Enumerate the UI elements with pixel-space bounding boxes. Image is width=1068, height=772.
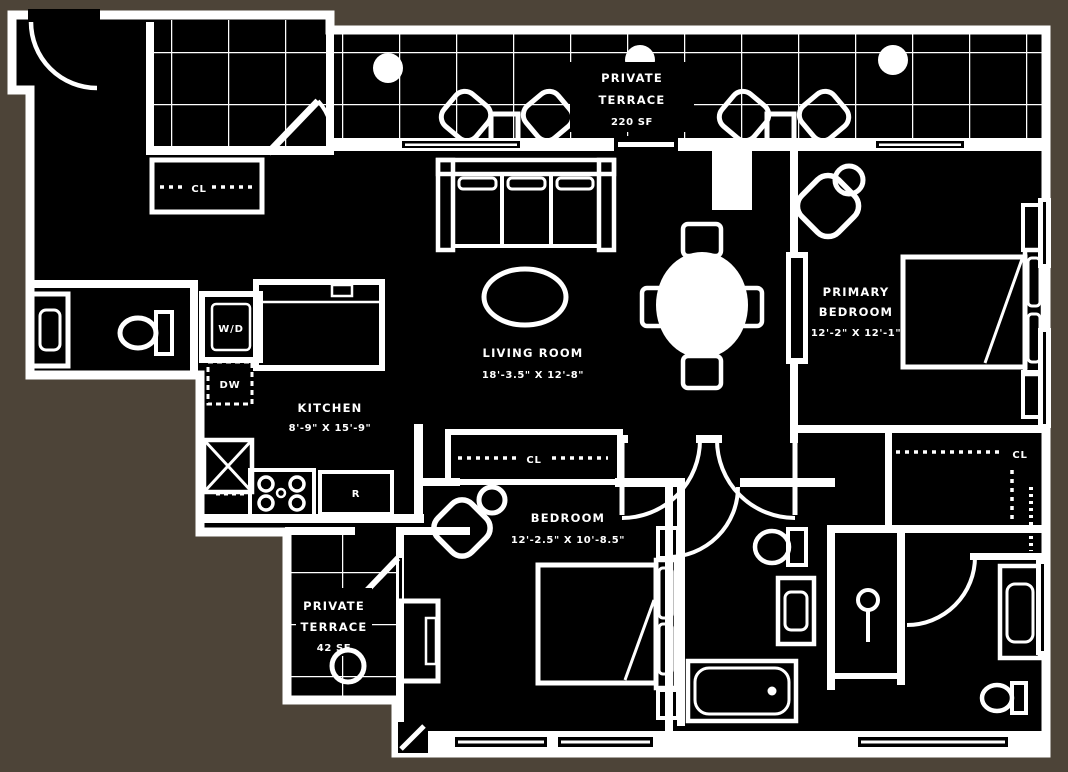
wall bbox=[615, 478, 677, 487]
primary-label-line2: BEDROOM bbox=[819, 305, 893, 319]
wall bbox=[827, 525, 835, 690]
terrace-top-area: 220 SF bbox=[611, 117, 653, 128]
wall bbox=[740, 478, 835, 487]
wall bbox=[285, 527, 355, 535]
wall bbox=[190, 280, 198, 378]
primary-closet-label: CL bbox=[1012, 450, 1027, 461]
refrigerator-label: R bbox=[352, 489, 361, 500]
window-glass-line bbox=[861, 741, 1005, 744]
entry-closet-label: CL bbox=[191, 184, 206, 195]
wall bbox=[28, 280, 198, 288]
window-glass-line bbox=[879, 144, 961, 147]
tub-drain bbox=[768, 687, 777, 696]
window-glass-line bbox=[1043, 202, 1046, 264]
window-glass-line bbox=[1041, 564, 1044, 651]
wall bbox=[146, 22, 154, 152]
wall bbox=[790, 425, 1048, 433]
window-glass-line bbox=[458, 741, 544, 744]
planter bbox=[878, 45, 908, 75]
living-room-label: LIVING ROOM bbox=[483, 346, 584, 360]
wall-pier bbox=[712, 150, 752, 210]
primary-label-line1: PRIMARY bbox=[823, 285, 890, 299]
wall bbox=[885, 428, 892, 530]
terrace-small-label-line1: PRIVATE bbox=[303, 599, 365, 613]
wall bbox=[420, 478, 460, 486]
terrace-tile-grid-left bbox=[152, 20, 328, 148]
window-glass-line bbox=[405, 144, 517, 147]
terrace-small: PRIVATE TERRACE 42 SF bbox=[285, 527, 398, 697]
bedroom-label: BEDROOM bbox=[531, 511, 605, 525]
kitchen-dims: 8'-9" X 15'-9" bbox=[289, 423, 372, 434]
wall bbox=[830, 525, 1048, 533]
hall-closet-label: CL bbox=[526, 455, 541, 466]
floor-plan: PRIVATE TERRACE 220 SF CL bbox=[0, 0, 1068, 772]
wall bbox=[835, 673, 905, 679]
kitchen-label: KITCHEN bbox=[298, 401, 363, 415]
wall bbox=[146, 146, 334, 155]
wall bbox=[970, 553, 1045, 560]
hall-closet: CL bbox=[448, 432, 620, 482]
bedroom-dims: 12'-2.5" X 10'-8.5" bbox=[511, 535, 625, 546]
living-room-dims: 18'-3.5" X 12'-8" bbox=[482, 370, 584, 381]
wall-recess-inner bbox=[791, 258, 803, 358]
window-glass-line bbox=[1043, 332, 1046, 424]
terrace-small-area: 42 SF bbox=[317, 643, 351, 654]
door-opening bbox=[722, 435, 790, 443]
sliding-door-panel bbox=[618, 142, 674, 147]
dining-table bbox=[656, 252, 748, 358]
terrace-top-label-line2: TERRACE bbox=[598, 93, 665, 107]
wall bbox=[897, 530, 905, 685]
planter bbox=[373, 53, 403, 83]
primary-dims: 12'-2" X 12'-1" bbox=[811, 328, 901, 339]
wall bbox=[665, 482, 673, 732]
wall bbox=[414, 424, 423, 520]
terrace-top-label-line1: PRIVATE bbox=[601, 71, 663, 85]
floor-plan-canvas: PRIVATE TERRACE 220 SF CL bbox=[0, 0, 1068, 772]
door-opening bbox=[28, 9, 100, 22]
window-glass-line bbox=[561, 741, 650, 744]
washer-dryer-label: W/D bbox=[218, 324, 243, 335]
door-opening bbox=[628, 435, 696, 443]
terrace-small-label-line2: TERRACE bbox=[300, 620, 367, 634]
right-wall-windows bbox=[1036, 198, 1051, 655]
dishwasher-label: DW bbox=[220, 380, 241, 391]
